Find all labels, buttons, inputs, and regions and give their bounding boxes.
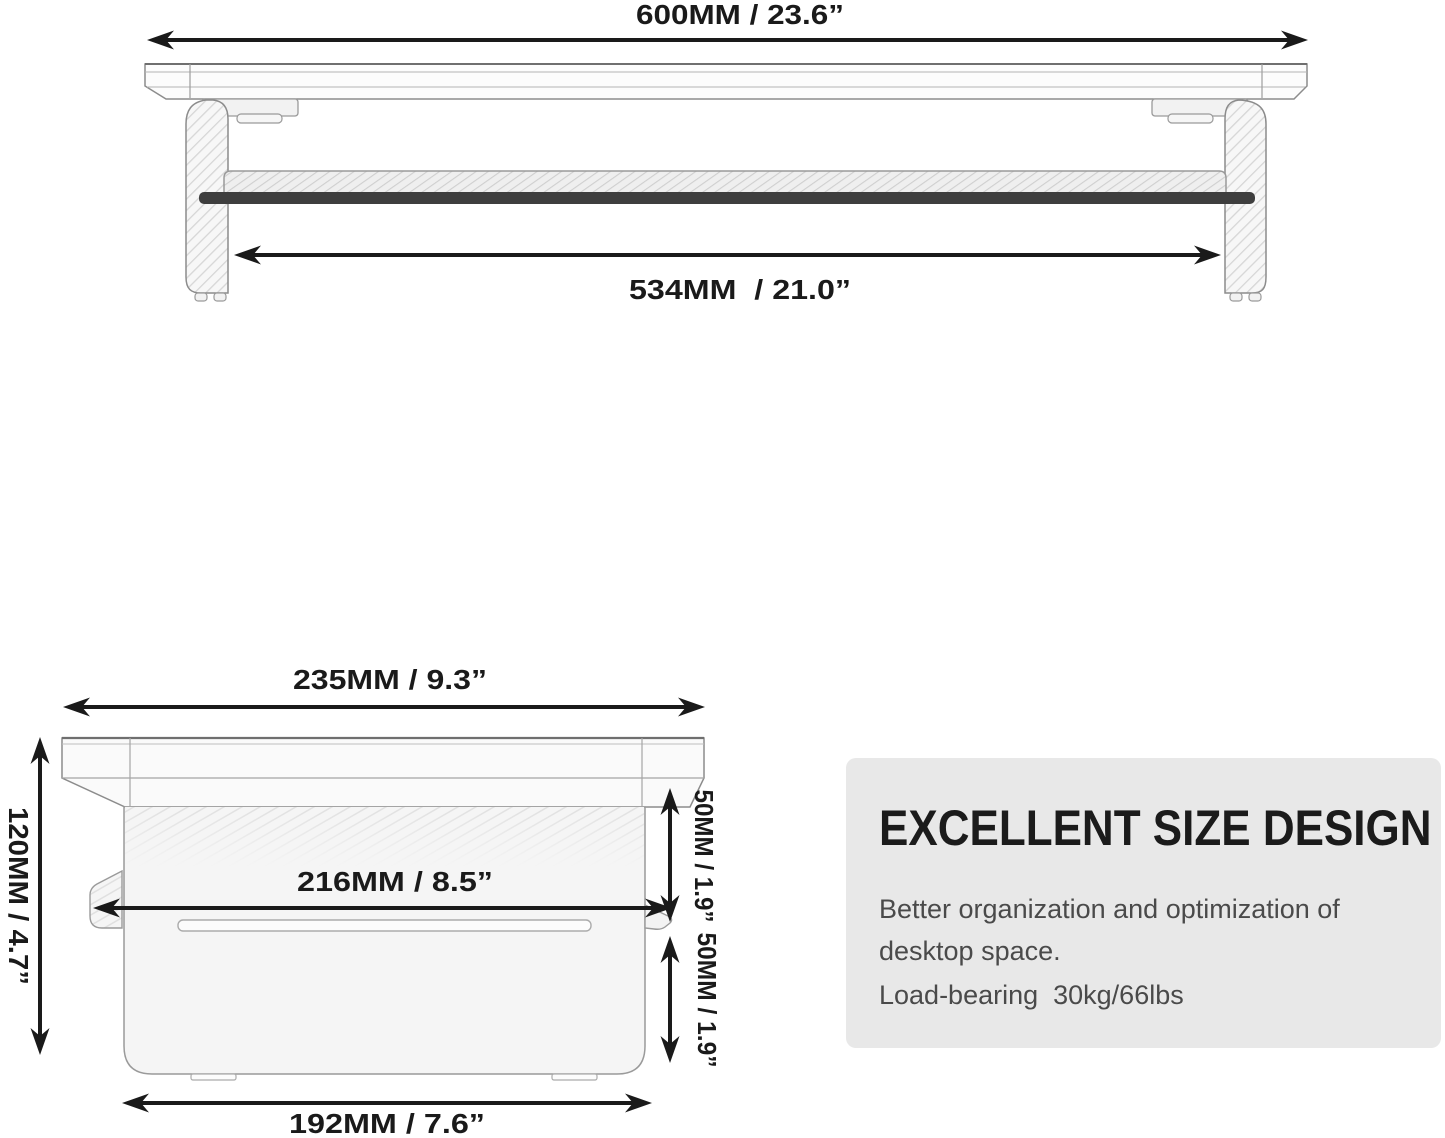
front-inner-width-label: 534MM / 21.0” [629,274,851,305]
info-card-body-line: Load-bearing 30kg/66lbs [879,974,1184,1016]
front-left-foot [195,293,207,301]
dim-50mm-upper: 50MM / 1.9” [661,788,720,923]
dim-192mm: 192MM / 7.6” [122,1094,652,1138]
front-shelf-edge-strip [199,192,1255,204]
side-top-platform [62,738,704,807]
side-foot [191,1074,236,1080]
side-upper-gap-label: 50MM / 1.9” [689,790,719,923]
dim-50mm-lower: 50MM / 1.9” [661,933,723,1068]
side-slot [178,920,591,931]
dim-235mm: 235MM / 9.3” [63,664,705,717]
side-view-drawing: 235MM / 9.3” [3,664,722,1138]
dim-600mm: 600MM / 23.6” [147,0,1308,50]
side-base-depth-label: 192MM / 7.6” [289,1108,485,1138]
info-card-title: EXCELLENT SIZE DESIGN [879,803,1432,853]
side-lower-gap-label: 50MM / 1.9” [692,933,722,1068]
info-card-body-line: desktop space. [879,930,1061,972]
info-card: EXCELLENT SIZE DESIGN Better organizatio… [846,758,1441,1048]
dim-120mm: 120MM / 4.7” [3,737,50,1055]
front-top-platform [145,64,1307,99]
front-right-foot [1230,293,1242,301]
product-dimension-diagram: 600MM / 23.6” [0,0,1445,1138]
side-leg-block [124,807,645,1080]
front-right-foot [1249,293,1261,301]
dim-534mm: 534MM / 21.0” [234,246,1221,306]
front-view-drawing: 600MM / 23.6” [145,0,1308,305]
info-card-body-line: Better organization and optimization of [879,888,1340,930]
front-width-label: 600MM / 23.6” [636,0,844,30]
front-left-foot [214,293,226,301]
side-inner-depth-label: 216MM / 8.5” [297,866,493,897]
side-depth-label: 235MM / 9.3” [293,664,487,695]
side-foot [552,1074,597,1080]
side-height-label: 120MM / 4.7” [3,807,34,985]
